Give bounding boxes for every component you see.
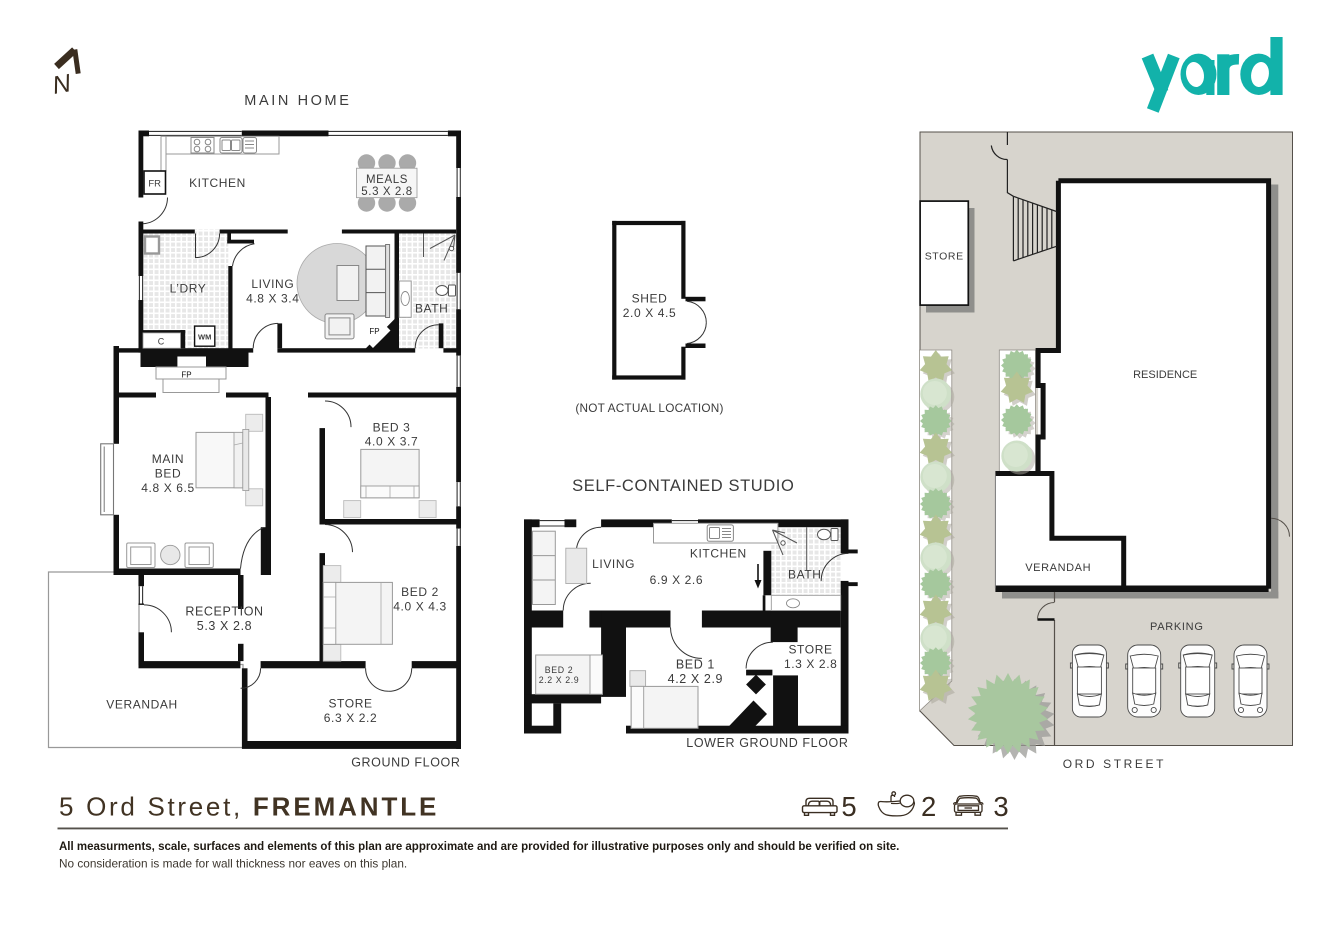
svg-text:No consideration is made for w: No consideration is made for wall thickn… [59,857,407,871]
svg-text:(NOT ACTUAL LOCATION): (NOT ACTUAL LOCATION) [575,401,723,415]
svg-text:5 Ord Street, FREMANTLE: 5 Ord Street, FREMANTLE [59,792,439,822]
svg-text:ORD STREET: ORD STREET [1063,757,1166,771]
svg-text:PARKING: PARKING [1150,621,1204,633]
svg-text:MAIN HOME: MAIN HOME [244,93,351,109]
svg-text:6.9 X 2.6: 6.9 X 2.6 [650,573,703,587]
svg-text:MAIN: MAIN [152,452,184,466]
svg-text:STORE: STORE [328,697,372,711]
svg-text:MEALS: MEALS [366,174,408,186]
svg-text:2.0 X 4.5: 2.0 X 4.5 [623,306,676,320]
svg-text:FR: FR [148,179,161,190]
svg-text:4.8 X 6.5: 4.8 X 6.5 [141,481,194,495]
svg-text:LOWER GROUND FLOOR: LOWER GROUND FLOOR [686,736,848,750]
svg-text:L’DRY: L’DRY [170,282,207,296]
svg-text:6.3 X 2.2: 6.3 X 2.2 [324,711,377,725]
svg-text:LIVING: LIVING [592,557,635,571]
svg-text:4.8 X 3.4: 4.8 X 3.4 [246,291,299,305]
svg-text:WM: WM [198,333,211,342]
svg-text:4.2 X 2.9: 4.2 X 2.9 [668,672,723,686]
svg-text:FP: FP [369,327,379,336]
svg-text:4.0 X 4.3: 4.0 X 4.3 [393,600,446,614]
svg-text:5.3 X 2.8: 5.3 X 2.8 [361,186,412,198]
svg-text:SHED: SHED [632,292,668,306]
svg-text:3: 3 [993,791,1008,822]
svg-text:BED 2: BED 2 [545,665,573,675]
svg-text:5: 5 [841,791,856,822]
svg-text:C: C [158,337,165,347]
svg-text:SELF-CONTAINED STUDIO: SELF-CONTAINED STUDIO [572,477,794,495]
svg-text:LIVING: LIVING [251,277,294,291]
svg-text:BED: BED [155,467,181,481]
svg-text:BATH: BATH [788,568,822,582]
svg-text:BED 2: BED 2 [401,585,439,599]
svg-text:STORE: STORE [925,251,964,263]
svg-text:All measurments, scale, surfac: All measurments, scale, surfaces and ele… [59,841,899,853]
svg-text:BATH: BATH [415,302,449,316]
svg-text:STORE: STORE [788,643,832,657]
svg-text:VERANDAH: VERANDAH [106,698,177,712]
svg-text:VERANDAH: VERANDAH [1025,562,1091,574]
svg-text:2.2 X 2.9: 2.2 X 2.9 [539,675,580,685]
svg-text:KITCHEN: KITCHEN [189,176,246,190]
svg-text:RESIDENCE: RESIDENCE [1133,369,1197,381]
svg-text:RECEPTION: RECEPTION [185,605,263,619]
svg-text:KITCHEN: KITCHEN [690,547,747,561]
svg-text:BED 1: BED 1 [676,658,715,672]
svg-text:2: 2 [921,791,936,822]
svg-text:BED 3: BED 3 [373,421,411,435]
svg-text:GROUND FLOOR: GROUND FLOOR [351,756,460,770]
svg-text:5.3 X 2.8: 5.3 X 2.8 [197,619,252,633]
svg-text:FP: FP [181,371,191,380]
svg-text:1.3 X 2.8: 1.3 X 2.8 [784,657,837,671]
svg-text:4.0 X 3.7: 4.0 X 3.7 [365,435,418,449]
